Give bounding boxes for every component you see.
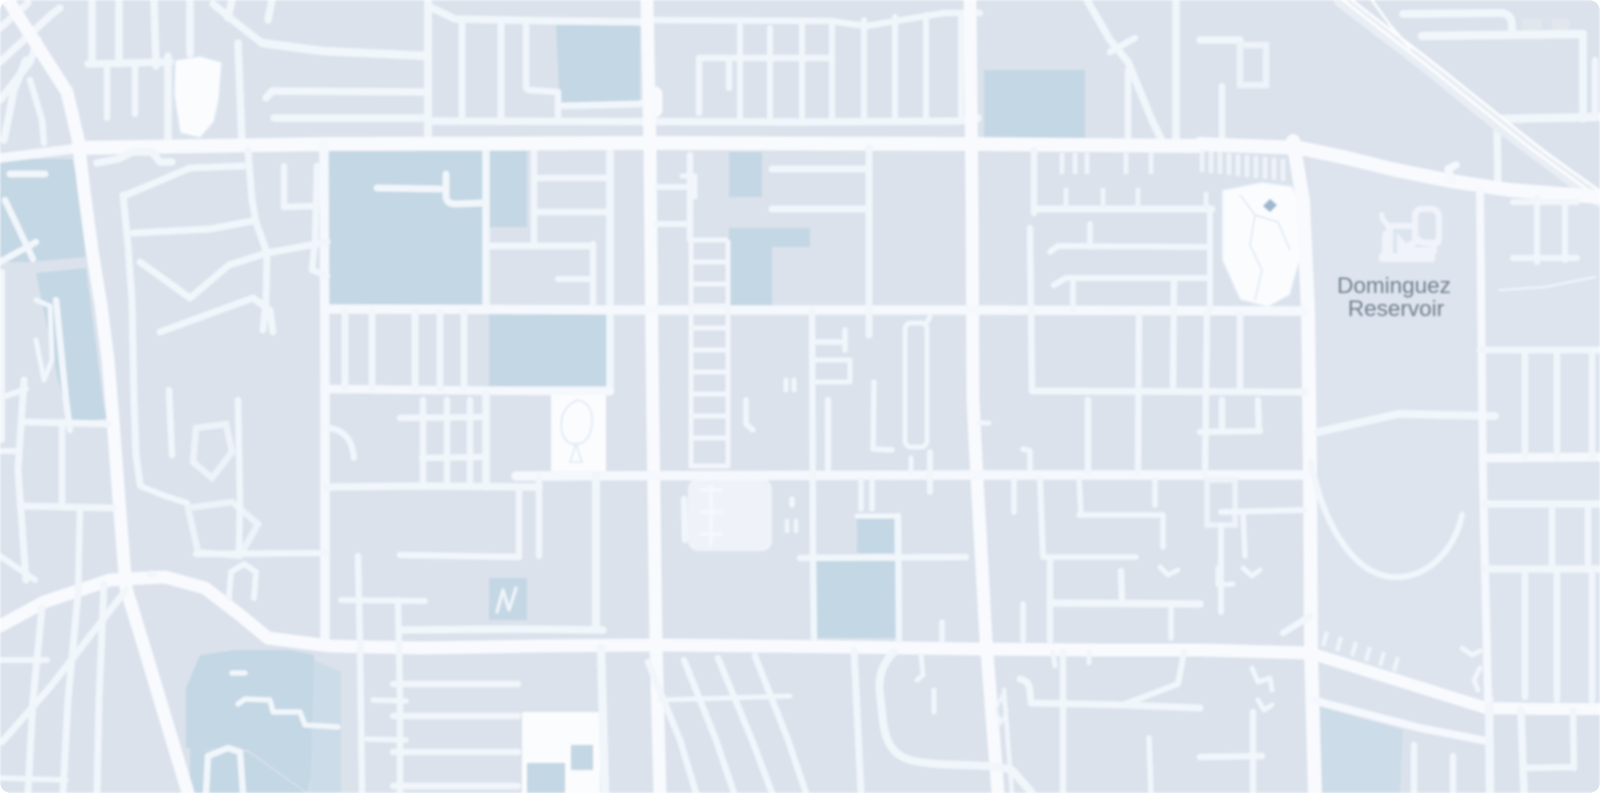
svg-text:Dominguez: Dominguez <box>1337 273 1451 298</box>
svg-text:Reservoir: Reservoir <box>1348 296 1445 321</box>
